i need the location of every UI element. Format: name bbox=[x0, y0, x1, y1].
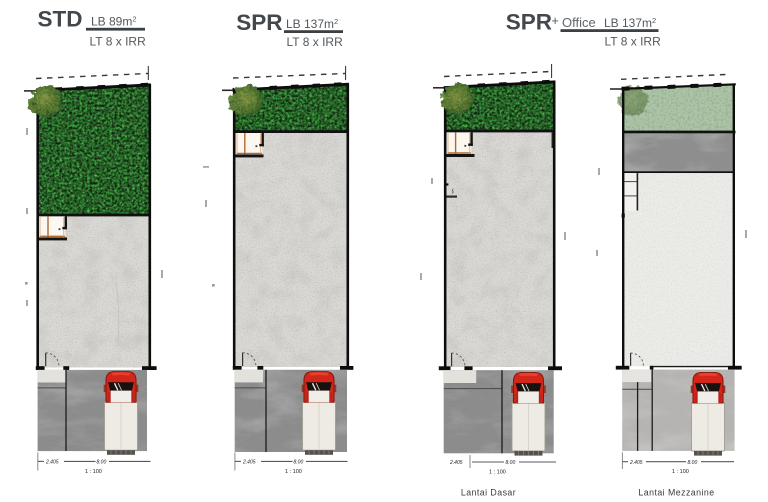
svg-text:2.405: 2.405 bbox=[629, 460, 643, 466]
svg-text:LT 8 x IRR: LT 8 x IRR bbox=[90, 34, 147, 48]
svg-text:8.00: 8.00 bbox=[506, 460, 516, 466]
svg-text:8.00: 8.00 bbox=[294, 460, 304, 466]
svg-text:2.405: 2.405 bbox=[449, 460, 463, 466]
svg-text:LB 137m2: LB 137m2 bbox=[604, 16, 656, 30]
svg-text:LB 137m2: LB 137m2 bbox=[286, 17, 338, 31]
svg-text:2.405: 2.405 bbox=[242, 460, 256, 466]
svg-text:Lantai Dasar: Lantai Dasar bbox=[461, 488, 516, 498]
svg-text:STD: STD bbox=[38, 7, 83, 32]
svg-text:8.00: 8.00 bbox=[688, 460, 698, 466]
svg-text:1 : 100: 1 : 100 bbox=[85, 469, 102, 475]
svg-text:+: + bbox=[552, 14, 559, 28]
svg-text:1 : 100: 1 : 100 bbox=[489, 470, 506, 476]
svg-text:1 : 100: 1 : 100 bbox=[672, 469, 689, 475]
svg-text:1 : 100: 1 : 100 bbox=[285, 469, 302, 475]
svg-text:8.00: 8.00 bbox=[97, 460, 107, 466]
svg-text:LT 8 x IRR: LT 8 x IRR bbox=[287, 35, 344, 49]
svg-text:2.405: 2.405 bbox=[45, 460, 59, 466]
svg-text:SPR: SPR bbox=[506, 10, 552, 35]
svg-text:Lantai Mezzanine: Lantai Mezzanine bbox=[638, 488, 714, 498]
svg-text:LB 89m2: LB 89m2 bbox=[91, 14, 137, 28]
svg-text:LT 8 x IRR: LT 8 x IRR bbox=[605, 34, 662, 48]
svg-text:SPR: SPR bbox=[236, 10, 282, 35]
svg-text:Office: Office bbox=[562, 15, 596, 30]
